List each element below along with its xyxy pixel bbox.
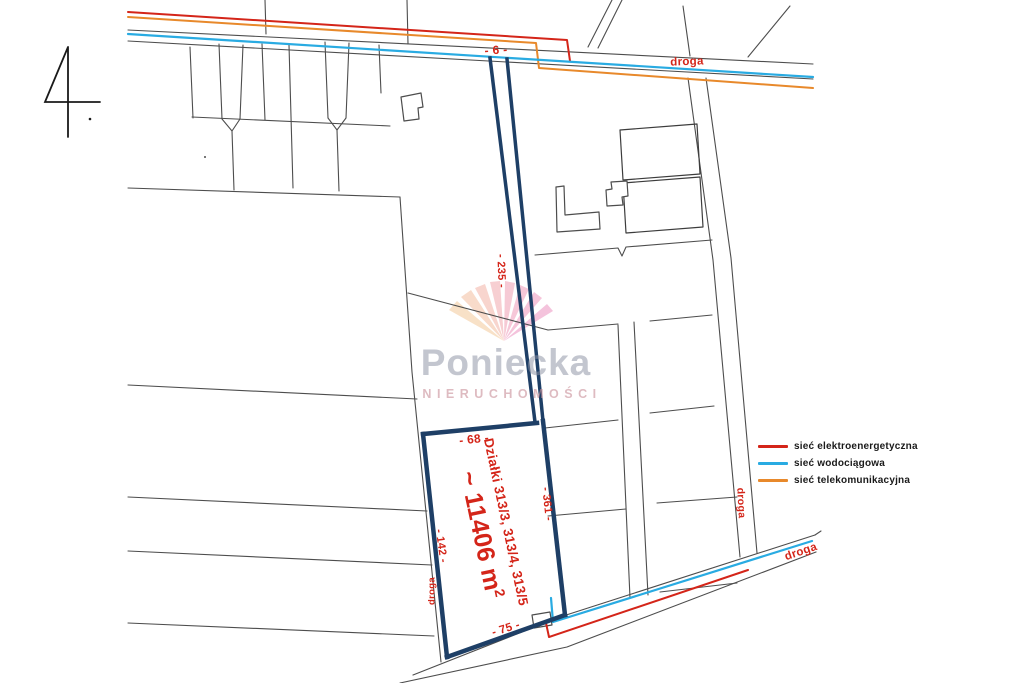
- dimension-strip: - 235 -: [494, 254, 507, 288]
- road-label-right: droga: [734, 487, 748, 518]
- road-label-access-strip: droga: [427, 577, 438, 605]
- sheet-number-glyph: [45, 47, 206, 158]
- watermark-brand: Poniecka: [421, 342, 591, 384]
- telecom-network-line: [128, 17, 813, 88]
- legend-item-label: sieć wodociągowa: [794, 458, 885, 469]
- dimension-top: - 6 -: [484, 42, 508, 57]
- watermark-subtitle: NIERUCHOMOŚCI: [422, 387, 601, 401]
- telecom-line-swatch: [758, 479, 788, 482]
- road-label-top: droga: [670, 55, 704, 68]
- cadastral-map-image: Poniecka NIERUCHOMOŚCI - 6 - droga - 235…: [0, 0, 1024, 683]
- watermark-rays-logo: [449, 281, 553, 341]
- legend-item-power: sieć elektroenergetyczna: [758, 438, 918, 455]
- power-line-swatch: [758, 445, 788, 448]
- legend-item-label: sieć elektroenergetyczna: [794, 441, 918, 452]
- legend-item-water: sieć wodociągowa: [758, 455, 918, 472]
- water-line-swatch: [758, 462, 788, 465]
- legend-item-telecom: sieć telekomunikacyjna: [758, 472, 918, 489]
- legend-item-label: sieć telekomunikacyjna: [794, 475, 910, 486]
- utility-legend: sieć elektroenergetyczna sieć wodociągow…: [758, 438, 918, 489]
